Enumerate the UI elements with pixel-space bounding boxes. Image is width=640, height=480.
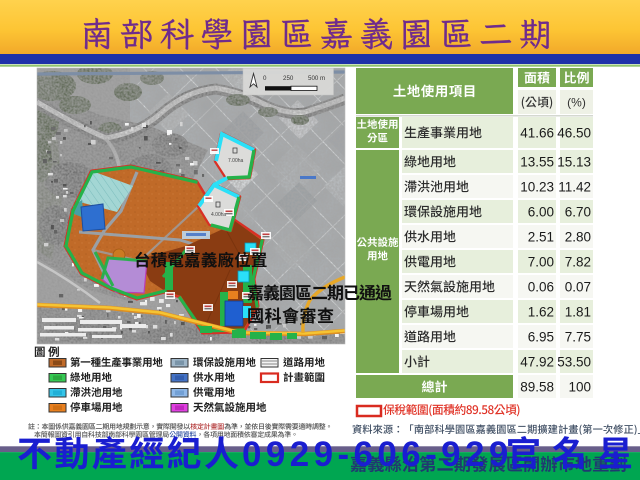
svg-text:6.95: 6.95 [528,329,554,344]
svg-text:7.00ha: 7.00ha [228,158,244,164]
svg-text:250: 250 [283,75,294,82]
svg-text:47.92: 47.92 [520,354,554,369]
svg-text:10.23: 10.23 [520,179,554,194]
svg-text:15.13: 15.13 [557,154,591,169]
svg-text:2.51: 2.51 [528,229,554,244]
svg-text:89.58: 89.58 [520,380,554,395]
svg-text:11.42: 11.42 [558,179,591,194]
svg-text:7.75: 7.75 [565,329,591,344]
svg-text:0929-606-929: 0929-606-929 [242,435,513,474]
svg-text:0.06: 0.06 [528,279,554,294]
svg-text:4.00ha: 4.00ha [211,212,227,218]
svg-text:2.80: 2.80 [565,229,591,244]
svg-text:6.00: 6.00 [528,204,554,219]
svg-text:7.00: 7.00 [528,254,554,269]
svg-text:41.66: 41.66 [520,125,554,140]
svg-text:0: 0 [263,75,267,82]
svg-text:13.55: 13.55 [520,154,554,169]
svg-text:0.07: 0.07 [565,279,591,294]
svg-text:53.50: 53.50 [557,354,591,369]
svg-text:46.50: 46.50 [557,125,591,140]
svg-text:7.82: 7.82 [565,254,591,269]
svg-text:1.81: 1.81 [565,304,591,319]
svg-text:6.70: 6.70 [565,204,591,219]
svg-text:500 m: 500 m [308,75,325,82]
svg-text:(%): (%) [567,96,586,110]
svg-text:100: 100 [568,380,591,395]
svg-text:1.62: 1.62 [528,304,554,319]
